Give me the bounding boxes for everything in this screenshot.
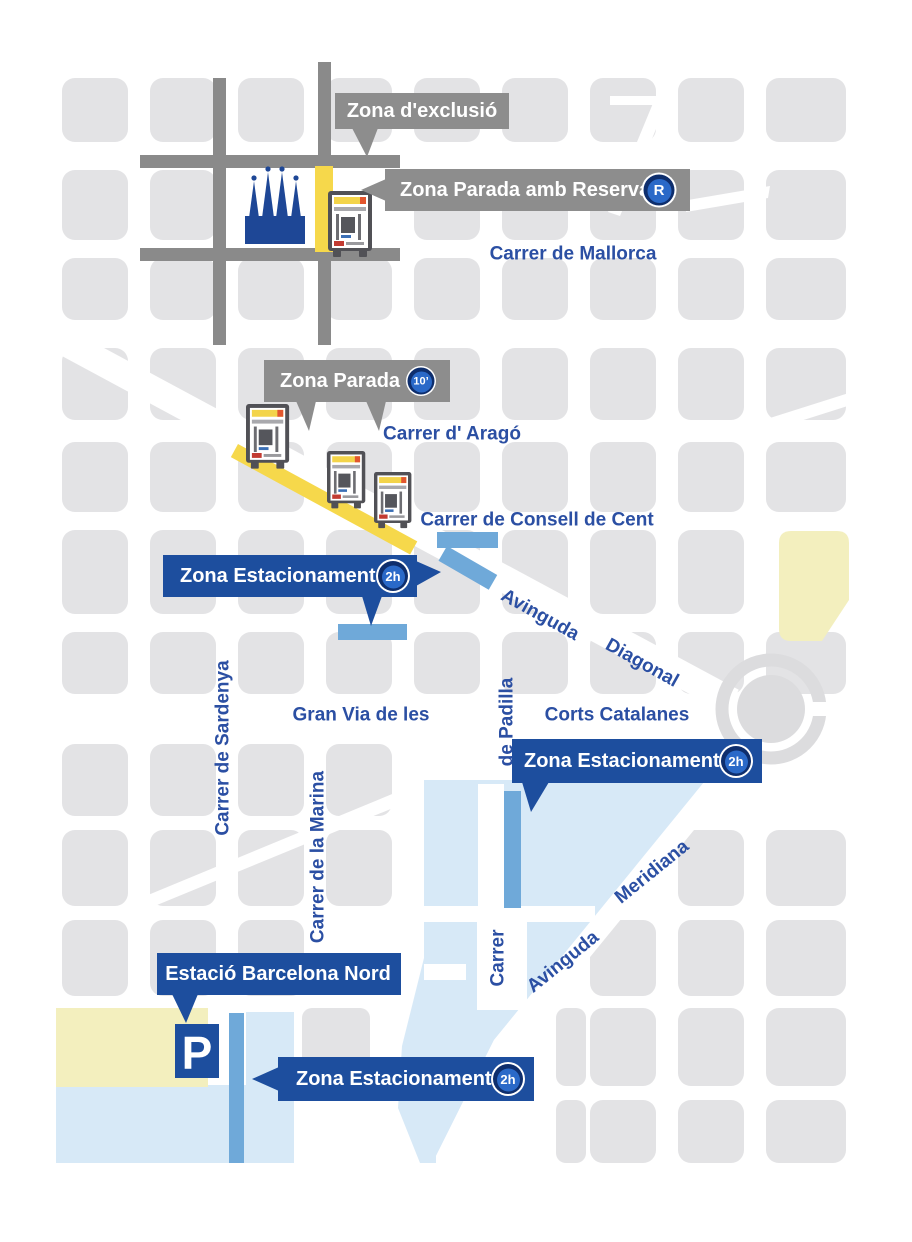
callout-label: Estació Barcelona Nord — [165, 963, 391, 985]
pale-yellow-zone-east — [779, 531, 849, 641]
callout-zona-estacionament-estacio: Zona Estacionament 2h — [252, 1057, 534, 1101]
parking-icon: P — [175, 1024, 219, 1079]
badge-label: R — [654, 182, 665, 199]
badge-2h: 2h — [376, 559, 410, 593]
map-page: Carrer de Mallorca Carrer d' Aragó Carre… — [0, 0, 912, 1242]
badge-10min: 10’ — [406, 366, 436, 396]
map-canvas: Carrer de Mallorca Carrer d' Aragó Carre… — [0, 0, 912, 1242]
badge-r: R — [642, 173, 677, 208]
badge-2h: 2h — [491, 1062, 525, 1096]
street-label-mallorca: Carrer de Mallorca — [490, 244, 657, 265]
badge-label: 2h — [385, 569, 400, 584]
street-label-marina: Carrer de la Marina — [308, 771, 329, 944]
callout-zona-exclusio: Zona d'exclusió — [335, 93, 509, 157]
badge-label: 2h — [728, 754, 743, 769]
badge-2h: 2h — [719, 744, 753, 778]
badge-label: 2h — [500, 1072, 515, 1087]
callout-label: Zona Parada amb Reserva — [400, 179, 651, 201]
callout-label: Zona d'exclusió — [347, 100, 497, 122]
bus-stop-sign-icon — [374, 472, 411, 528]
street-label-gran-via: Gran Via de les — [293, 705, 430, 726]
light-blue-zone-southwest — [56, 1085, 294, 1163]
callout-label: Zona Estacionament — [180, 565, 376, 587]
parking-label: P — [182, 1027, 213, 1079]
bus-stop-sign-icon — [327, 451, 365, 508]
street-label-consell: Carrer de Consell de Cent — [420, 510, 654, 531]
callout-zona-estacionament-diagonal: Zona Estacionament 2h — [163, 555, 441, 626]
street-label-sardenya: Carrer de Sardenya — [213, 660, 234, 836]
sagrada-familia-icon — [245, 166, 305, 244]
callout-label: Zona Estacionament — [524, 750, 720, 772]
callout-zona-parada: Zona Parada 10’ — [264, 360, 450, 431]
street-label-corts: Corts Catalanes — [545, 705, 690, 726]
street-label-arago: Carrer d' Aragó — [383, 424, 521, 445]
callout-pointer — [352, 128, 378, 157]
street-cut-2 — [610, 96, 666, 105]
callout-zona-parada-reserva: Zona Parada amb Reserva R — [361, 169, 690, 211]
badge-label: 10’ — [413, 376, 428, 388]
bus-stop-sign-icon — [328, 191, 372, 257]
callout-label: Zona Parada — [280, 370, 401, 392]
street-label-carrer: Carrer — [488, 929, 509, 987]
callout-label: Zona Estacionament — [296, 1068, 492, 1090]
bus-stop-sign-icon — [246, 404, 289, 469]
